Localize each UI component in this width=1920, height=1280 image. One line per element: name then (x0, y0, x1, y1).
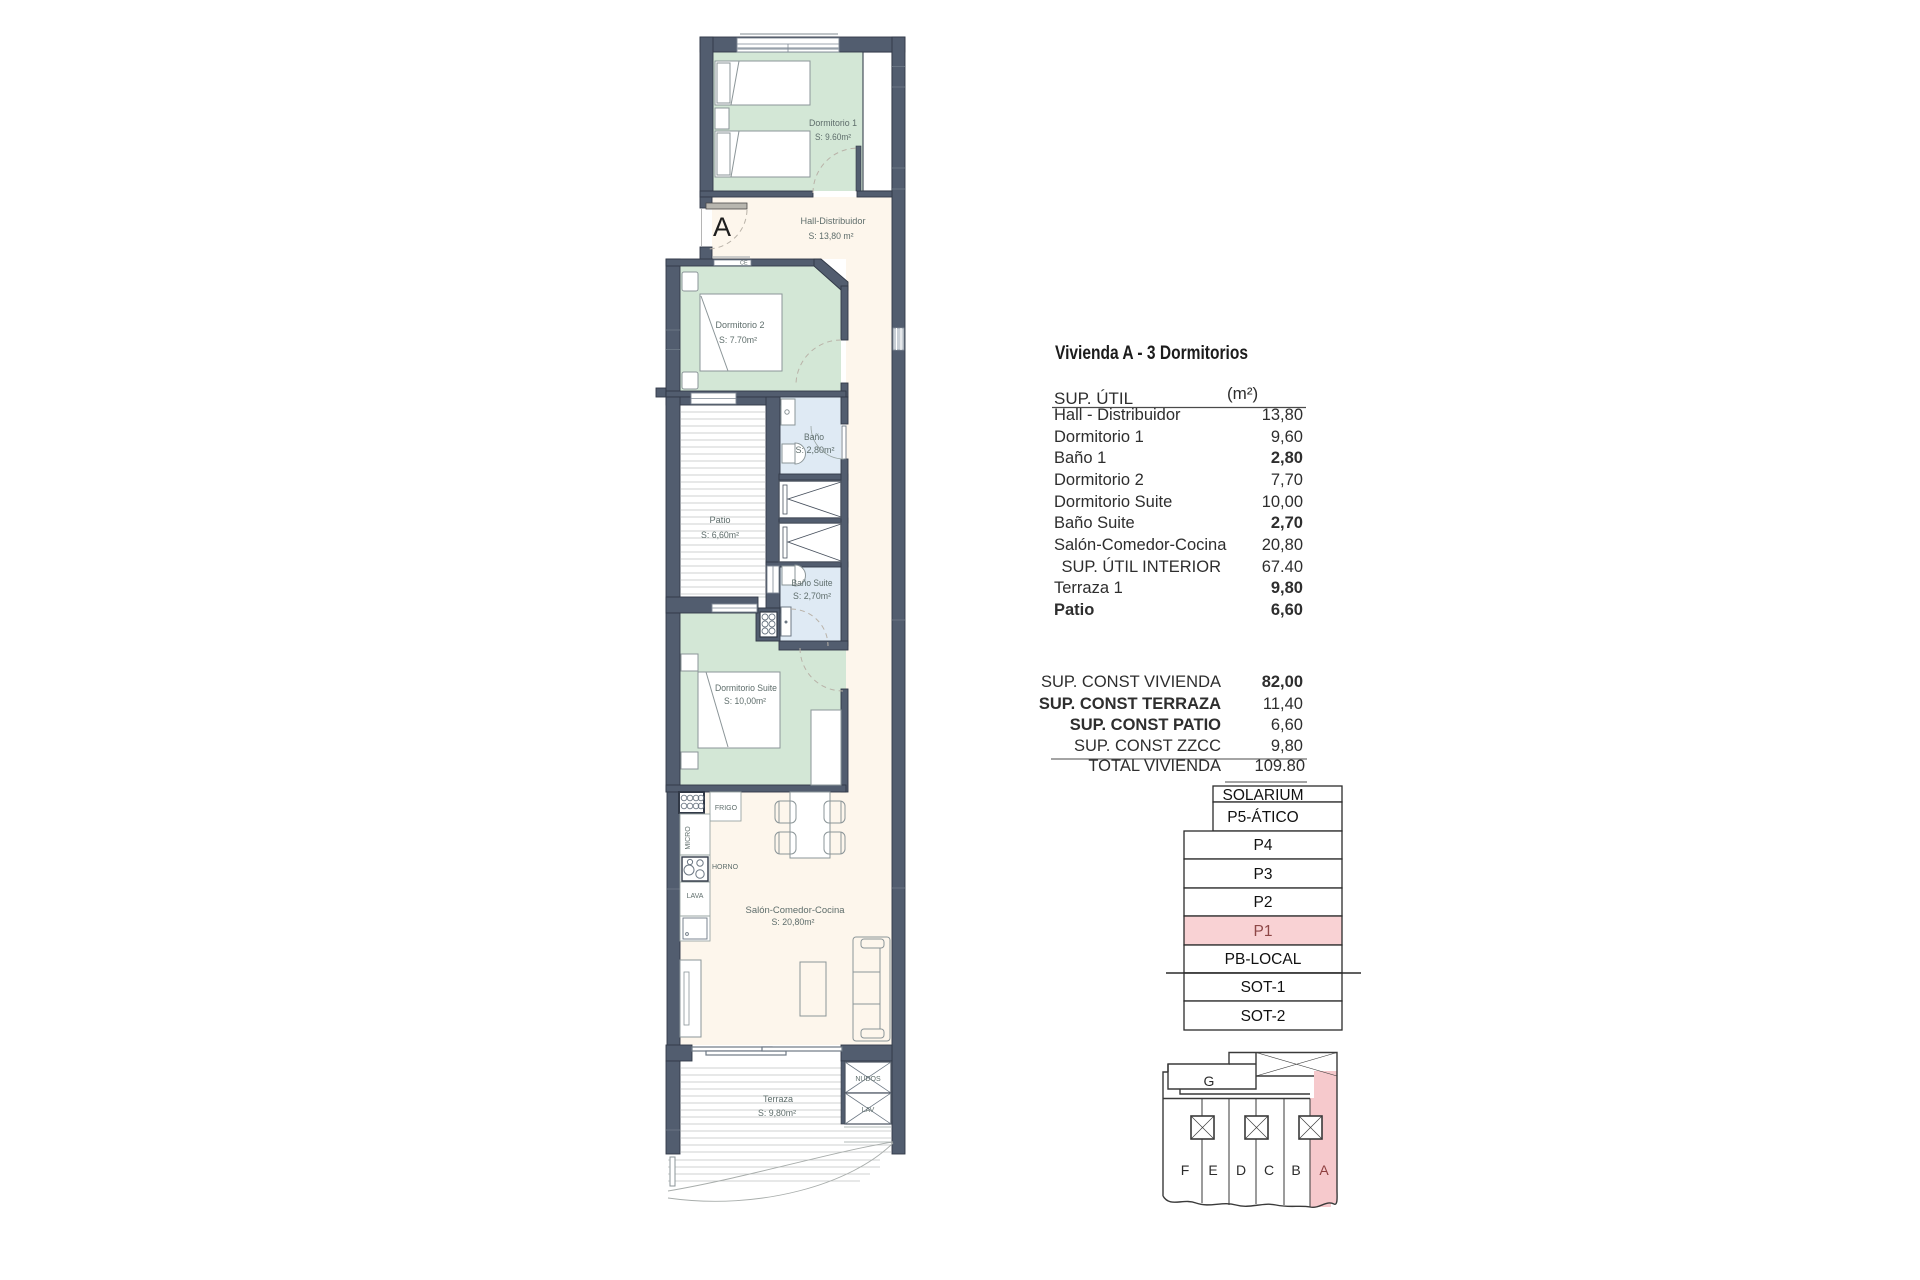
svg-text:11,40: 11,40 (1263, 695, 1303, 713)
svg-text:E: E (1208, 1162, 1217, 1178)
svg-text:S: 2,80m²: S: 2,80m² (796, 445, 835, 455)
svg-text:Terraza: Terraza (763, 1094, 794, 1105)
svg-text:SOLARIUM: SOLARIUM (1223, 787, 1304, 804)
svg-text:Hall-Distribuidor: Hall-Distribuidor (801, 216, 866, 227)
svg-text:10,00: 10,00 (1262, 493, 1303, 511)
svg-text:Baño: Baño (804, 432, 824, 443)
svg-text:Dormitorio 1: Dormitorio 1 (809, 118, 857, 129)
svg-text:CE: CE (740, 261, 748, 267)
svg-text:P5-ÁTICO: P5-ÁTICO (1227, 809, 1298, 826)
svg-text:Baño Suite: Baño Suite (1054, 514, 1135, 532)
svg-text:C: C (1264, 1162, 1274, 1178)
svg-text:Salón-Comedor-Cocina: Salón-Comedor-Cocina (746, 905, 846, 916)
svg-text:B: B (1291, 1162, 1300, 1178)
svg-text:SOT-2: SOT-2 (1241, 1008, 1286, 1025)
svg-text:NUDOS: NUDOS (855, 1076, 881, 1083)
svg-text:S: 9.60m²: S: 9.60m² (815, 132, 851, 142)
svg-text:SUP. CONST PATIO: SUP. CONST PATIO (1070, 716, 1221, 734)
svg-text:S: 2,70m²: S: 2,70m² (793, 591, 831, 601)
svg-text:Vivienda A - 3 Dormitorios: Vivienda A - 3 Dormitorios (1055, 343, 1248, 364)
svg-text:SUP. CONST VIVIENDA: SUP. CONST VIVIENDA (1041, 673, 1221, 691)
svg-text:2,80: 2,80 (1271, 449, 1303, 467)
svg-text:TOTAL VIVIENDA: TOTAL VIVIENDA (1088, 757, 1221, 775)
svg-text:P1: P1 (1254, 923, 1273, 940)
svg-text:S: 10,00m²: S: 10,00m² (724, 696, 766, 706)
svg-text:Hall - Distribuidor: Hall - Distribuidor (1054, 406, 1181, 424)
svg-text:A: A (1319, 1162, 1329, 1178)
svg-text:Baño 1: Baño 1 (1054, 449, 1106, 467)
svg-text:Baño Suite: Baño Suite (792, 578, 833, 589)
svg-text:20,80: 20,80 (1262, 536, 1303, 554)
svg-text:HORNO: HORNO (712, 864, 739, 871)
svg-text:LAV: LAV (862, 1107, 875, 1114)
svg-text:6,60: 6,60 (1271, 716, 1303, 734)
svg-text:2,70: 2,70 (1271, 514, 1303, 532)
svg-text:13,80: 13,80 (1262, 406, 1303, 424)
svg-text:F: F (1181, 1162, 1190, 1178)
svg-text:S: 7.70m²: S: 7.70m² (719, 335, 757, 345)
svg-text:Patio: Patio (710, 515, 731, 526)
svg-text:82,00: 82,00 (1262, 673, 1303, 691)
svg-text:7,70: 7,70 (1271, 471, 1303, 489)
svg-text:SOT-1: SOT-1 (1241, 979, 1286, 996)
svg-text:G: G (1204, 1073, 1215, 1089)
svg-text:Dormitorio 1: Dormitorio 1 (1054, 428, 1144, 446)
svg-text:Dormitorio 2: Dormitorio 2 (716, 320, 765, 331)
svg-text:D: D (1236, 1162, 1246, 1178)
svg-text:FRIGO: FRIGO (715, 805, 738, 812)
svg-text:LAVA: LAVA (687, 893, 704, 900)
svg-text:S: 6,60m²: S: 6,60m² (701, 530, 739, 540)
svg-text:Patio: Patio (1054, 601, 1094, 619)
svg-text:PB-LOCAL: PB-LOCAL (1225, 951, 1302, 968)
svg-text:A: A (713, 212, 731, 242)
svg-text:SUP. ÚTIL INTERIOR: SUP. ÚTIL INTERIOR (1061, 557, 1221, 576)
svg-text:S: 13,80 m²: S: 13,80 m² (809, 231, 854, 241)
svg-text:67.40: 67.40 (1262, 558, 1303, 576)
svg-text:P3: P3 (1254, 866, 1273, 883)
svg-text:6,60: 6,60 (1271, 601, 1303, 619)
svg-text:MICRO: MICRO (685, 826, 692, 850)
svg-text:Terraza 1: Terraza 1 (1054, 579, 1123, 597)
svg-text:9,80: 9,80 (1271, 579, 1303, 597)
svg-text:(m²): (m²) (1227, 384, 1258, 403)
svg-text:Dormitorio 2: Dormitorio 2 (1054, 471, 1144, 489)
svg-text:SUP. CONST TERRAZA: SUP. CONST TERRAZA (1039, 695, 1221, 713)
svg-text:Dormitorio Suite: Dormitorio Suite (1054, 493, 1172, 511)
svg-text:S: 9,80m²: S: 9,80m² (758, 1108, 796, 1118)
svg-text:P4: P4 (1254, 837, 1273, 854)
svg-text:9,60: 9,60 (1271, 428, 1303, 446)
svg-text:Dormitorio Suite: Dormitorio Suite (715, 683, 777, 694)
svg-text:SUP. CONST ZZCC: SUP. CONST ZZCC (1074, 737, 1221, 755)
svg-text:S: 20,80m²: S: 20,80m² (772, 917, 815, 927)
svg-text:P2: P2 (1254, 894, 1273, 911)
svg-text:109.80: 109.80 (1255, 757, 1305, 775)
svg-text:Salón-Comedor-Cocina: Salón-Comedor-Cocina (1054, 536, 1227, 554)
svg-text:9,80: 9,80 (1271, 737, 1303, 755)
